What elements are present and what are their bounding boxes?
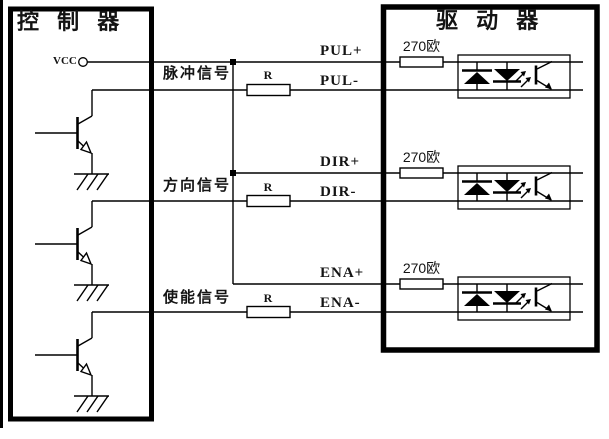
pin-label-pul-plus: PUL+ <box>320 43 363 60</box>
schematic-linework <box>0 0 609 439</box>
vcc-label: VCC <box>53 55 77 67</box>
junction-dot <box>230 170 236 176</box>
resistor-label-270ohm: 270欧 <box>398 261 445 276</box>
resistor-label-270ohm: 270欧 <box>398 150 445 165</box>
wiring-schematic: 控 制 器 驱 动 器 VCC 脉冲信号 R PUL+ PUL- 270欧 方向… <box>0 0 609 439</box>
signal-label-pulse: 脉冲信号 <box>163 66 231 83</box>
signal-label-direction: 方向信号 <box>163 178 231 195</box>
channel-direction <box>35 166 583 301</box>
resistor-label-r: R <box>253 181 283 194</box>
controller-box <box>11 9 152 419</box>
vcc-bus <box>230 59 236 284</box>
resistor-label-r: R <box>253 292 283 305</box>
pin-label-dir-minus: DIR- <box>320 184 357 201</box>
driver-title: 驱 动 器 <box>436 9 544 33</box>
resistor-label-270ohm: 270欧 <box>398 39 445 54</box>
pin-label-dir-plus: DIR+ <box>320 154 360 171</box>
resistor-label-r: R <box>253 69 283 82</box>
signal-label-enable: 使能信号 <box>163 290 231 307</box>
pin-label-ena-minus: ENA- <box>320 295 361 312</box>
pin-label-pul-minus: PUL- <box>320 73 359 90</box>
channel-enable <box>35 277 583 412</box>
controller-title: 控 制 器 <box>17 10 125 34</box>
pin-label-ena-plus: ENA+ <box>320 265 364 282</box>
channel-pulse <box>35 55 583 190</box>
